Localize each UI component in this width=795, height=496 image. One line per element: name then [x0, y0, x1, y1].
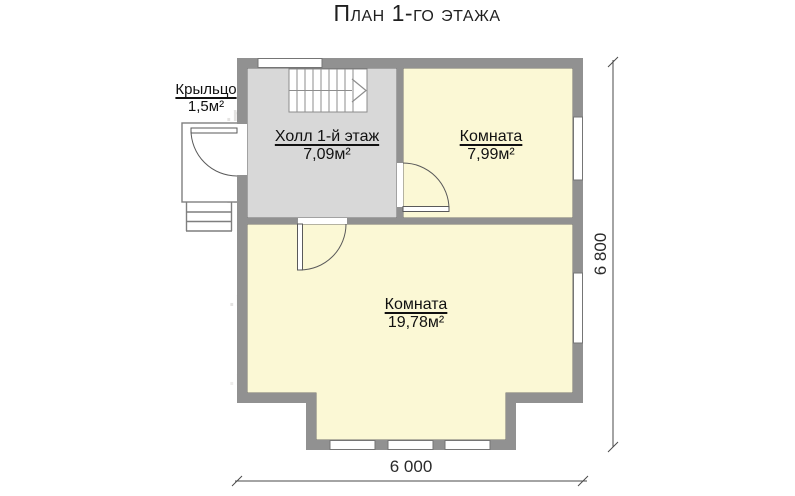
window-right-lower: [574, 273, 583, 343]
room-top-name: Комната: [460, 128, 523, 146]
porch-label: Крыльцо 1,5м²: [175, 81, 236, 115]
window-right-upper: [574, 117, 583, 180]
room-top-label: Комната 7,99м²: [460, 128, 523, 164]
porch-platform: [182, 123, 238, 231]
floor-plan-drawing: [0, 0, 795, 496]
entrance-doorway: [237, 124, 247, 175]
hall-name: Холл 1-й этаж: [275, 128, 379, 146]
window-bay-3: [445, 441, 490, 450]
wall-interior-vertical: [397, 68, 403, 163]
wall-interior-horizontal: [347, 218, 573, 224]
dimension-width-label: 6 000: [390, 457, 433, 477]
porch-name: Крыльцо: [175, 81, 236, 98]
room-top-area: 7,99м²: [460, 146, 523, 164]
room-big-name: Комната: [385, 296, 448, 314]
window-bay-1: [330, 441, 375, 450]
room-big-floor: [247, 224, 573, 440]
entrance-door-leaf: [191, 128, 237, 133]
hall-label: Холл 1-й этаж 7,09м²: [275, 128, 379, 164]
window-bay-2: [388, 441, 433, 450]
dimension-height-label: 6 800: [591, 233, 611, 276]
room-big-label: Комната 19,78м²: [385, 296, 448, 332]
wall-left: [237, 58, 247, 403]
wall-interior-horizontal: [247, 218, 298, 224]
wall-right: [573, 58, 583, 403]
room-big-area: 19,78м²: [385, 314, 448, 332]
page-title: План 1-го этажа: [333, 0, 500, 27]
room-fills: [247, 68, 573, 440]
room-big-doorway: [298, 218, 347, 224]
wall-bottom-right: [516, 393, 583, 403]
window-top-wall: [258, 59, 322, 68]
room-top-doorway: [397, 163, 403, 207]
porch-area: 1,5м²: [175, 98, 236, 115]
floor-plan-screenshot: .ru www.z .ru www.z .ru .ru: [0, 0, 795, 496]
wall-bottom-left: [237, 393, 316, 403]
room-big-door-leaf: [298, 224, 303, 270]
staircase: [289, 69, 367, 112]
room-top-door-leaf: [403, 207, 449, 212]
hall-area: 7,09м²: [275, 146, 379, 164]
porch-steps: [186, 202, 232, 231]
